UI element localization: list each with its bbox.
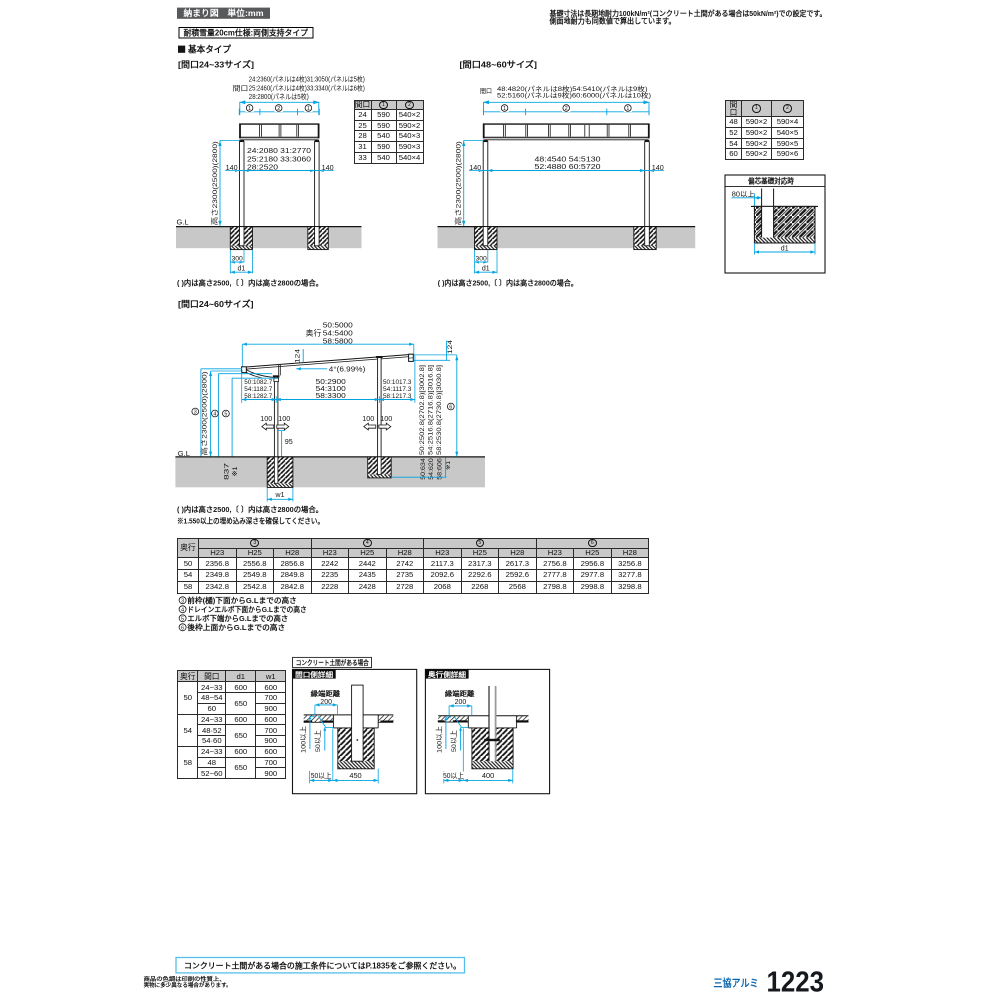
svg-text:58:606: 58:606	[437, 458, 444, 480]
svg-text:4°(6.99%): 4°(6.99%)	[329, 366, 366, 374]
svg-text:52:5160(パネルは9枚)60:6000(パネルは10枚: 52:5160(パネルは9枚)60:6000(パネルは10枚)	[497, 91, 651, 100]
svg-text:1: 1	[307, 106, 310, 112]
svg-text:( )内は高さ2500,〔 〕内は高さ2800の場合。: ( )内は高さ2500,〔 〕内は高さ2800の場合。	[177, 278, 323, 287]
svg-text:54:2516.8(2716.8)[3016.8]: 54:2516.8(2716.8)[3016.8]	[428, 365, 435, 455]
svg-text:※1.550以上の埋め込み深さを確保してください。: ※1.550以上の埋め込み深さを確保してください。	[177, 516, 324, 525]
svg-text:コンクリート土間がある場合: コンクリート土間がある場合	[296, 658, 369, 667]
svg-text:2: 2	[277, 106, 280, 112]
svg-text:間口: 間口	[480, 87, 492, 95]
svg-text:52:4880 60:5720: 52:4880 60:5720	[535, 162, 601, 171]
svg-text:28:2520: 28:2520	[247, 163, 278, 172]
svg-text:50以上: 50以上	[311, 771, 332, 780]
svg-text:100以上: 100以上	[434, 726, 443, 753]
svg-text:200: 200	[455, 699, 467, 706]
svg-text:3: 3	[181, 598, 184, 604]
svg-text:5: 5	[181, 616, 184, 622]
svg-text:50以上: 50以上	[443, 771, 464, 780]
svg-text:間口側詳細: 間口側詳細	[295, 670, 333, 679]
svg-text:450: 450	[349, 771, 361, 780]
svg-text:124: 124	[447, 340, 454, 354]
svg-text:d1: d1	[238, 266, 246, 273]
svg-text:[間口24~60サイズ]: [間口24~60サイズ]	[178, 299, 254, 309]
svg-text:50以上: 50以上	[313, 730, 322, 752]
svg-text:コンクリート土間がある場合の施工条件についてはP.1835を: コンクリート土間がある場合の施工条件についてはP.1835をご参照ください。	[184, 961, 461, 971]
svg-text:( )内は高さ2500,〔 〕内は高さ2800の場合。: ( )内は高さ2500,〔 〕内は高さ2800の場合。	[438, 279, 578, 288]
svg-text:1: 1	[248, 106, 251, 112]
svg-text:50:1082.7: 50:1082.7	[244, 379, 272, 386]
svg-text:d1: d1	[482, 266, 490, 273]
svg-text:54:1182.7: 54:1182.7	[244, 386, 272, 393]
svg-text:高さ2300(2500)(2800): 高さ2300(2500)(2800)	[454, 141, 463, 225]
svg-text:50:634: 50:634	[420, 458, 427, 480]
svg-text:1223: 1223	[767, 967, 825, 999]
svg-text:100: 100	[260, 414, 272, 423]
svg-text:[間口48~60サイズ]: [間口48~60サイズ]	[460, 59, 538, 69]
svg-text:100: 100	[362, 414, 374, 423]
svg-text:140: 140	[652, 163, 664, 172]
svg-text:三協アルミ: 三協アルミ	[714, 977, 759, 990]
svg-text:奥行: 奥行	[306, 329, 323, 338]
svg-text:奥行側詳細: 奥行側詳細	[427, 670, 466, 679]
svg-text:140: 140	[322, 163, 334, 172]
svg-text:300: 300	[475, 256, 487, 263]
svg-text:54:1117.3: 54:1117.3	[383, 386, 412, 393]
svg-text:高さ2300(2500)(2800): 高さ2300(2500)(2800)	[199, 372, 208, 456]
svg-text:納まり図 単位:mm: 納まり図 単位:mm	[184, 8, 264, 18]
svg-text:耐積雪量20cm仕様:両側支持タイプ: 耐積雪量20cm仕様:両側支持タイプ	[184, 28, 309, 38]
svg-text:837: 837	[224, 463, 231, 480]
svg-text:G.L: G.L	[177, 218, 189, 227]
svg-text:124: 124	[295, 349, 302, 363]
svg-text:前枠(樋)下面からG.Lまでの高さ: 前枠(樋)下面からG.Lまでの高さ	[187, 596, 296, 605]
svg-text:54:620: 54:620	[428, 458, 435, 480]
svg-text:後枠上面からG.Lまでの高さ: 後枠上面からG.Lまでの高さ	[187, 623, 285, 632]
svg-text:95: 95	[285, 437, 293, 446]
svg-text:100: 100	[380, 414, 392, 423]
svg-text:24:2360(パネルは4枚)31:3050(パネルは5枚): 24:2360(パネルは4枚)31:3050(パネルは5枚)	[249, 75, 365, 84]
svg-text:28:2800(パネルは5枚): 28:2800(パネルは5枚)	[249, 92, 309, 101]
svg-text:5: 5	[224, 411, 227, 417]
svg-text:( )内は高さ2500,〔 〕内は高さ2800の場合。: ( )内は高さ2500,〔 〕内は高さ2800の場合。	[177, 505, 323, 514]
svg-text:※1: ※1	[232, 466, 239, 476]
svg-text:1: 1	[626, 106, 629, 112]
svg-text:1: 1	[503, 106, 506, 112]
svg-text:300: 300	[231, 256, 243, 263]
svg-text:ドレインエルボ下面からG.Lまでの高さ: ドレインエルボ下面からG.Lまでの高さ	[187, 605, 306, 614]
svg-text:400: 400	[482, 771, 494, 780]
svg-text:側面地耐力も同数値で算出しています。: 側面地耐力も同数値で算出しています。	[549, 17, 676, 26]
svg-text:140: 140	[469, 163, 481, 172]
svg-text:25:2460(パネルは4枚)33:3340(パネルは6枚): 25:2460(パネルは4枚)33:3340(パネルは6枚)	[249, 83, 365, 92]
svg-text:実物に多少異なる場合があります。: 実物に多少異なる場合があります。	[144, 981, 232, 989]
svg-text:w1: w1	[275, 492, 285, 499]
svg-text:100以上: 100以上	[298, 726, 307, 753]
svg-text:間口: 間口	[233, 84, 249, 92]
svg-text:80以上: 80以上	[732, 190, 755, 199]
svg-text:6: 6	[449, 404, 452, 410]
svg-text:2: 2	[565, 106, 568, 112]
svg-text:100: 100	[278, 414, 290, 423]
svg-text:エルボ下端からG.Lまでの高さ: エルボ下端からG.Lまでの高さ	[187, 614, 288, 623]
svg-text:50以上: 50以上	[449, 730, 458, 752]
svg-text:4: 4	[181, 607, 184, 613]
svg-text:d1: d1	[781, 245, 789, 252]
svg-text:50:1017.3: 50:1017.3	[383, 379, 412, 386]
svg-text:商品の色調は印刷の性質上、: 商品の色調は印刷の性質上、	[144, 975, 226, 983]
svg-text:6: 6	[181, 625, 184, 631]
svg-text:縁端距離: 縁端距離	[445, 689, 475, 698]
svg-text:4: 4	[213, 411, 216, 417]
svg-text:高さ2300(2500)(2800): 高さ2300(2500)(2800)	[210, 141, 219, 225]
svg-text:58:2530.8(2730.8)[3030.8]: 58:2530.8(2730.8)[3030.8]	[436, 365, 443, 455]
svg-text:[間口24~33サイズ]: [間口24~33サイズ]	[178, 59, 254, 69]
svg-text:50:2502.8(2702.8)[3002.8]: 50:2502.8(2702.8)[3002.8]	[419, 365, 426, 455]
svg-text:3: 3	[194, 409, 197, 415]
svg-text:58:3300: 58:3300	[316, 391, 346, 400]
svg-text:基本タイプ: 基本タイプ	[187, 44, 232, 55]
svg-text:140: 140	[226, 163, 238, 172]
svg-text:偏芯基礎対応時: 偏芯基礎対応時	[748, 175, 794, 185]
svg-text:縁端距離: 縁端距離	[311, 689, 341, 698]
